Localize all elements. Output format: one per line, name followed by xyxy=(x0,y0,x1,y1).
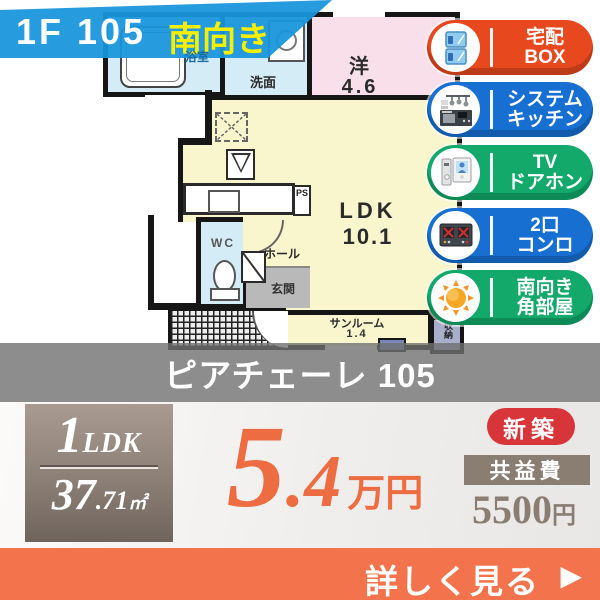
badge-label: コンロ xyxy=(516,236,573,255)
badge-label: TV xyxy=(533,153,557,172)
ldk-label: LDK xyxy=(328,198,408,224)
fee-value: 5500円 xyxy=(458,486,590,533)
system-kitchen-icon xyxy=(438,92,474,128)
wall xyxy=(205,90,212,145)
wc-label: WC xyxy=(204,236,242,250)
wall xyxy=(178,138,212,145)
bath-label: 浴室 xyxy=(185,48,209,65)
two-burner-stove-icon xyxy=(438,220,474,252)
fee-label: 共益費 xyxy=(464,455,590,485)
unit-number: 1F 105 xyxy=(16,11,146,53)
sun-icon xyxy=(437,279,475,317)
badge-label: 2口 xyxy=(530,216,560,235)
tv-doorphone-icon xyxy=(439,155,473,191)
badge-label: 宅配 xyxy=(526,28,564,47)
badge-system-kitchen: システムキッチン xyxy=(427,82,593,137)
pipe-space: PS xyxy=(293,185,311,216)
shoe-cabinet-icon xyxy=(241,251,266,283)
badge-two-burner-stove: 2口コンロ xyxy=(427,208,593,263)
area-int: 37 xyxy=(52,470,96,519)
badge-south-corner: 南向き角部屋 xyxy=(427,270,593,325)
toilet-tank-icon xyxy=(210,288,240,301)
badge-delivery-box: 宅配BOX xyxy=(427,20,593,75)
layout-type: LDK xyxy=(83,428,142,459)
property-name-band: ピアチェーレ 105 xyxy=(0,343,600,402)
badge-tv-doorphone: TVドアホン xyxy=(427,145,593,200)
arrow-right-icon: ▶ xyxy=(560,559,582,592)
wall xyxy=(148,215,154,310)
rent-int: 5 xyxy=(227,402,286,532)
rent-price: 5.4万円 xyxy=(195,402,455,542)
ldk-size: 10.1 xyxy=(322,224,414,250)
new-label: 新築 xyxy=(503,410,559,444)
plan-notch xyxy=(145,95,211,143)
badge-label: システム xyxy=(507,90,582,109)
rent-unit: 万円 xyxy=(347,462,423,517)
badge-label: BOX xyxy=(524,48,565,67)
layout-value: 1LDK xyxy=(25,406,173,465)
layout-area-box: 1LDK 37.71㎡ xyxy=(25,404,173,542)
area-unit: ㎡ xyxy=(128,493,146,513)
window-mark xyxy=(333,12,385,17)
area-value: 37.71㎡ xyxy=(25,469,173,520)
washroom-label: 洗面 xyxy=(250,72,276,91)
badge-label: 南向き xyxy=(516,278,573,297)
entrance-label: 玄関 xyxy=(262,280,304,297)
summary-section: 1LDK 37.71㎡ 5.4万円 新築 共益費 5500円 xyxy=(0,402,600,548)
details-button[interactable]: 詳しく見る ▶ xyxy=(0,548,600,600)
rent-frac: .4 xyxy=(286,440,342,525)
refrigerator-space-icon xyxy=(215,112,248,142)
badge-label: ドアホン xyxy=(507,173,583,192)
fee-unit: 円 xyxy=(552,503,576,529)
property-name: ピアチェーレ 105 xyxy=(164,349,436,397)
badge-label: キッチン xyxy=(507,110,583,129)
facing-direction: 南向き xyxy=(168,12,270,61)
western-label: 洋 xyxy=(330,50,390,79)
kitchen-counter xyxy=(183,183,295,215)
listing-card: 洗面 洋 4.6 LDK 10.1 PS WC ホール 玄関 xyxy=(0,0,600,600)
fee-amount: 5500 xyxy=(472,487,552,532)
badge-label: 角部屋 xyxy=(516,298,573,317)
layout-number: 1 xyxy=(57,407,83,464)
range-icon xyxy=(226,149,255,180)
details-label: 詳しく見る xyxy=(365,555,540,600)
new-construction-badge: 新築 xyxy=(487,408,575,445)
area-frac: .71 xyxy=(96,486,129,515)
delivery-box-icon xyxy=(440,30,472,66)
